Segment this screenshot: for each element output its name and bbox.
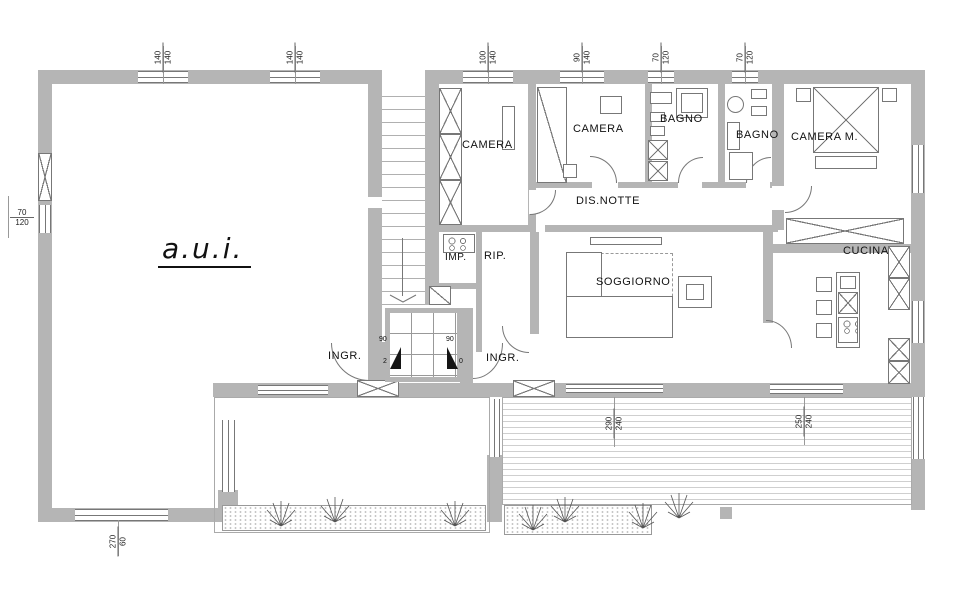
dimension-line: [8, 196, 9, 238]
door-swing: [678, 157, 703, 183]
window: [75, 509, 168, 521]
room-label-soggiorno: SOGGIORNO: [596, 276, 670, 288]
room-label-camera2: CAMERA: [573, 123, 624, 135]
room-label-ingr-left: INGR.: [328, 350, 362, 362]
wall: [38, 70, 382, 84]
dimension-label: 290240: [605, 409, 624, 439]
appliance: [838, 292, 858, 314]
window: [38, 153, 52, 201]
dimension-label: 90: [379, 336, 387, 344]
dimension-label: 2: [383, 358, 387, 366]
dimension-label: 27060: [109, 527, 128, 557]
stool: [816, 323, 832, 338]
bidet: [650, 126, 665, 136]
window: [357, 380, 399, 397]
door-opening: [368, 197, 382, 208]
window: [913, 397, 924, 459]
appliance: [648, 140, 668, 160]
window: [770, 384, 843, 394]
window: [489, 399, 500, 457]
wall: [425, 70, 439, 305]
room-label-bagno1: BAGNO: [660, 113, 703, 125]
terrace-deck-outline: [502, 397, 912, 505]
dimension-label: 70120: [10, 208, 34, 227]
dimension-label: 100140: [479, 43, 498, 73]
dimension-label: 140140: [154, 43, 173, 73]
room-label-ingr-right: INGR.: [486, 352, 520, 364]
plant-icon: [438, 500, 472, 530]
window: [513, 380, 555, 397]
room-label-bagno2: BAGNO: [736, 129, 779, 141]
stool: [816, 277, 832, 292]
furniture: [563, 164, 577, 178]
dimension-label: 90140: [573, 43, 592, 73]
bed-bench: [815, 156, 877, 169]
washbasin: [650, 92, 672, 104]
door-opening: [772, 186, 784, 210]
wall: [530, 232, 539, 334]
toilet: [751, 89, 767, 99]
room-label-imp: IMP.: [445, 252, 467, 263]
furniture: [600, 96, 622, 114]
dimension-label: 140140: [286, 43, 305, 73]
floor-plan: 90 2 90 0: [0, 0, 957, 603]
wardrobe: [439, 134, 462, 180]
entry-door-marker-icon: [390, 347, 401, 369]
window: [39, 205, 51, 233]
boiler: [443, 234, 475, 253]
stove: [838, 317, 858, 343]
shaft: [429, 286, 451, 305]
sideboard: [590, 237, 662, 245]
door-swing: [785, 186, 812, 213]
tv: [686, 284, 704, 300]
door-swing: [331, 343, 369, 381]
dimension-label: 90: [446, 336, 454, 344]
bidet: [751, 106, 767, 116]
wall: [545, 225, 778, 232]
wall: [911, 70, 925, 397]
sink: [840, 276, 856, 289]
room-label-dis-notte: DIS.NOTTE: [576, 195, 640, 207]
plant-icon: [318, 496, 352, 526]
wall: [476, 232, 482, 352]
stair-direction-line: [402, 238, 403, 296]
pillar: [720, 507, 732, 519]
wall: [437, 225, 536, 232]
dimension-label: 0: [459, 358, 463, 366]
wardrobe: [786, 218, 904, 244]
tall-unit: [888, 338, 910, 361]
wall: [718, 84, 725, 188]
plant-icon: [548, 496, 582, 526]
window: [258, 385, 328, 395]
sofa: [566, 296, 673, 338]
wall: [911, 459, 925, 510]
tall-unit: [888, 246, 910, 278]
window: [566, 384, 663, 393]
door-swing: [590, 156, 617, 183]
entry-door-marker-icon: [447, 347, 458, 369]
wardrobe: [439, 88, 462, 134]
door-swing: [502, 326, 529, 353]
plant-icon: [626, 502, 660, 532]
wardrobe: [439, 180, 462, 225]
room-label-rip: RIP.: [484, 250, 506, 262]
stool: [816, 300, 832, 315]
window: [912, 145, 924, 193]
plant-icon: [662, 492, 696, 522]
dimension-label: 70120: [652, 43, 671, 73]
door-swing: [766, 320, 792, 348]
shower-tray: [681, 93, 703, 113]
wall: [763, 225, 773, 323]
wall: [38, 70, 52, 522]
room-label-camera-m: CAMERA M.: [791, 131, 858, 143]
double-bed: [813, 87, 879, 153]
staircase: [382, 84, 425, 310]
shower: [729, 152, 753, 180]
appliance: [648, 161, 668, 181]
tall-unit: [888, 278, 910, 310]
dimension-label: 70120: [736, 43, 755, 73]
plant-icon: [264, 500, 298, 530]
window: [912, 301, 924, 343]
washbasin: [727, 96, 744, 113]
tall-unit: [888, 361, 910, 384]
room-label-cucina: CUCINA: [843, 245, 889, 257]
room-label-camera1: CAMERA: [462, 139, 513, 151]
nightstand: [796, 88, 811, 102]
nightstand: [882, 88, 897, 102]
door-swing: [530, 190, 556, 215]
dimension-label: 250240: [795, 407, 814, 437]
stair-arrow-icon: [389, 294, 417, 304]
room-label-aui: a.u.i.: [158, 232, 251, 268]
entrance-glass-grid: [385, 308, 462, 382]
plant-icon: [516, 504, 550, 534]
